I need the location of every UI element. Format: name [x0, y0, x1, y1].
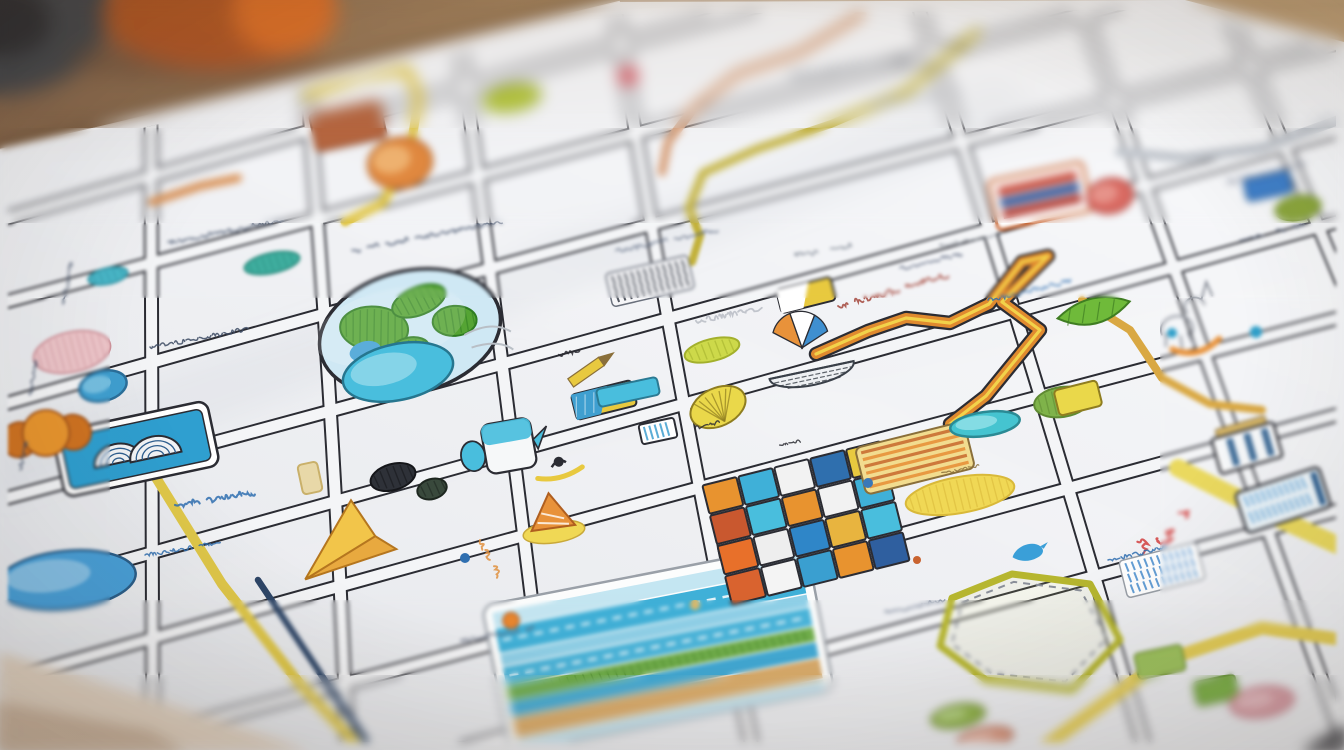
orange-object-blurred: [70, 0, 337, 82]
photo-of-hand-drawn-map: Angled close-up photograph of a large ha…: [0, 0, 1344, 750]
map-photo-canvas: [0, 0, 1344, 750]
